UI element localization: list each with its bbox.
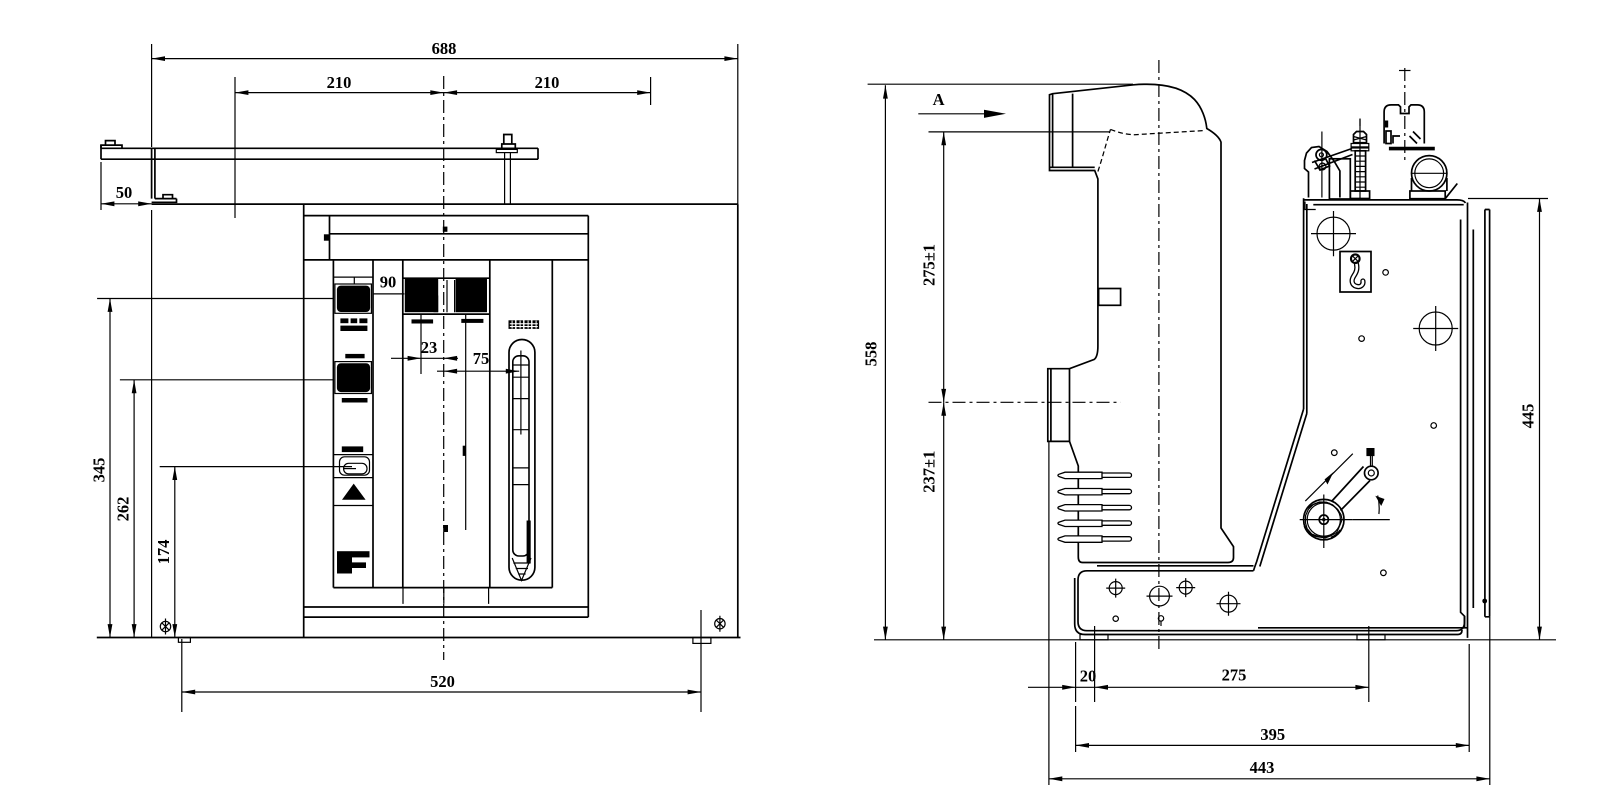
svg-text:345: 345 [90, 458, 109, 483]
svg-text:395: 395 [1260, 725, 1285, 744]
svg-text:A: A [933, 90, 945, 109]
svg-text:558: 558 [862, 342, 881, 367]
svg-text:210: 210 [327, 73, 352, 92]
svg-text:688: 688 [432, 39, 457, 58]
svg-text:50: 50 [116, 183, 133, 202]
svg-text:90: 90 [380, 273, 397, 292]
svg-text:237±1: 237±1 [920, 451, 939, 493]
svg-text:445: 445 [1519, 404, 1538, 429]
svg-text:443: 443 [1250, 758, 1275, 777]
svg-text:275: 275 [1222, 666, 1247, 685]
svg-text:275±1: 275±1 [920, 244, 939, 286]
svg-text:174: 174 [154, 540, 173, 565]
svg-text:210: 210 [535, 73, 560, 92]
svg-text:262: 262 [114, 497, 133, 522]
svg-text:520: 520 [430, 672, 455, 691]
svg-text:23: 23 [421, 338, 438, 357]
svg-text:75: 75 [473, 349, 490, 368]
svg-text:20: 20 [1080, 667, 1097, 686]
